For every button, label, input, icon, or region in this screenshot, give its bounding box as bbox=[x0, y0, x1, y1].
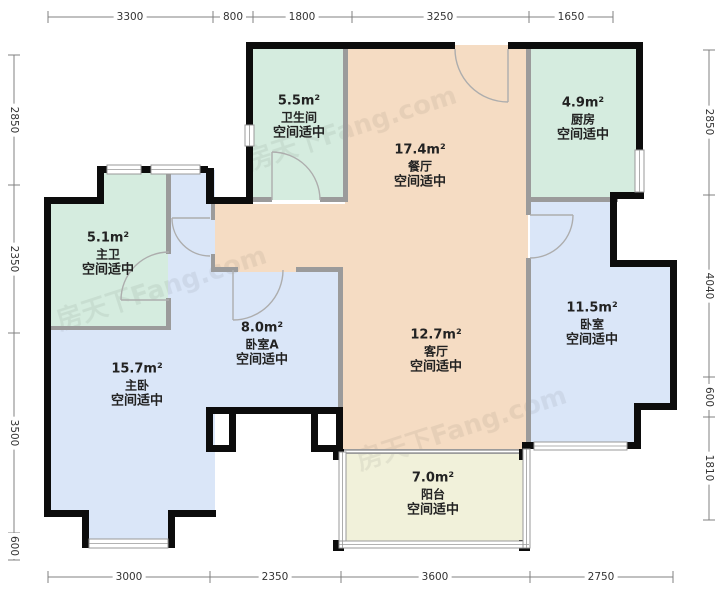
room-area: 12.7m² bbox=[410, 327, 462, 344]
room-label-bedroom: 11.5m² 卧室 空间适中 bbox=[566, 300, 618, 349]
room-label-master-bedroom: 15.7m² 主卧 空间适中 bbox=[111, 361, 163, 410]
dim-top-2: 800 bbox=[220, 11, 246, 23]
bay-window-fill bbox=[89, 513, 168, 542]
master-bedroom-fill bbox=[51, 330, 215, 513]
room-label-master-bath: 5.1m² 主卫 空间适中 bbox=[82, 230, 134, 279]
dim-bottom-4: 2750 bbox=[585, 571, 618, 583]
dim-left-3: 3500 bbox=[8, 417, 20, 450]
room-note: 空间适中 bbox=[236, 353, 288, 370]
room-label-balcony: 7.0m² 阳台 空间适中 bbox=[407, 470, 459, 519]
room-note: 空间适中 bbox=[111, 394, 163, 411]
dim-left-4: 600 bbox=[8, 533, 20, 559]
room-label-bathroom: 5.5m² 卫生间 空间适中 bbox=[273, 93, 325, 142]
room-area: 4.9m² bbox=[557, 95, 609, 112]
room-note: 空间适中 bbox=[410, 360, 462, 377]
dim-top-4: 3250 bbox=[424, 11, 457, 23]
room-area: 11.5m² bbox=[566, 300, 618, 317]
room-name: 卧室A bbox=[236, 337, 288, 353]
dim-right-4: 1810 bbox=[703, 452, 715, 485]
room-area: 7.0m² bbox=[407, 470, 459, 487]
dim-bottom-1: 3000 bbox=[113, 571, 146, 583]
dim-left-2: 2350 bbox=[8, 243, 20, 276]
room-name: 主卧 bbox=[111, 378, 163, 394]
room-area: 5.1m² bbox=[82, 230, 134, 247]
dim-top-1: 3300 bbox=[114, 11, 147, 23]
room-label-living: 12.7m² 客厅 空间适中 bbox=[410, 327, 462, 376]
room-name: 主卫 bbox=[82, 247, 134, 263]
room-note: 空间适中 bbox=[557, 128, 609, 145]
dim-top-5: 1650 bbox=[555, 11, 588, 23]
room-name: 卫生间 bbox=[273, 110, 325, 126]
room-label-dining: 17.4m² 餐厅 空间适中 bbox=[394, 142, 446, 191]
dim-right-2: 4040 bbox=[703, 270, 715, 303]
balcony-slider bbox=[343, 449, 524, 454]
room-note: 空间适中 bbox=[273, 126, 325, 143]
dim-right-3: 600 bbox=[703, 384, 715, 410]
room-note: 空间适中 bbox=[82, 263, 134, 280]
room-name: 厨房 bbox=[557, 112, 609, 128]
room-label-bedroom-a: 8.0m² 卧室A 空间适中 bbox=[236, 320, 288, 369]
room-name: 客厅 bbox=[410, 344, 462, 360]
room-area: 8.0m² bbox=[236, 320, 288, 337]
room-note: 空间适中 bbox=[566, 333, 618, 350]
room-area: 5.5m² bbox=[273, 93, 325, 110]
dim-left-1: 2850 bbox=[8, 104, 20, 137]
room-area: 17.4m² bbox=[394, 142, 446, 159]
dim-bottom-2: 2350 bbox=[259, 571, 292, 583]
dim-top-3: 1800 bbox=[286, 11, 319, 23]
floorplan-canvas: 房天下Fang.com 房天下Fang.com 房天下Fang.com bbox=[0, 0, 723, 600]
dim-bottom-3: 3600 bbox=[419, 571, 452, 583]
room-name: 餐厅 bbox=[394, 159, 446, 175]
room-area: 15.7m² bbox=[111, 361, 163, 378]
room-name: 卧室 bbox=[566, 317, 618, 333]
room-note: 空间适中 bbox=[407, 503, 459, 520]
dim-right-1: 2850 bbox=[703, 106, 715, 139]
room-label-kitchen: 4.9m² 厨房 空间适中 bbox=[557, 95, 609, 144]
room-name: 阳台 bbox=[407, 487, 459, 503]
room-note: 空间适中 bbox=[394, 175, 446, 192]
